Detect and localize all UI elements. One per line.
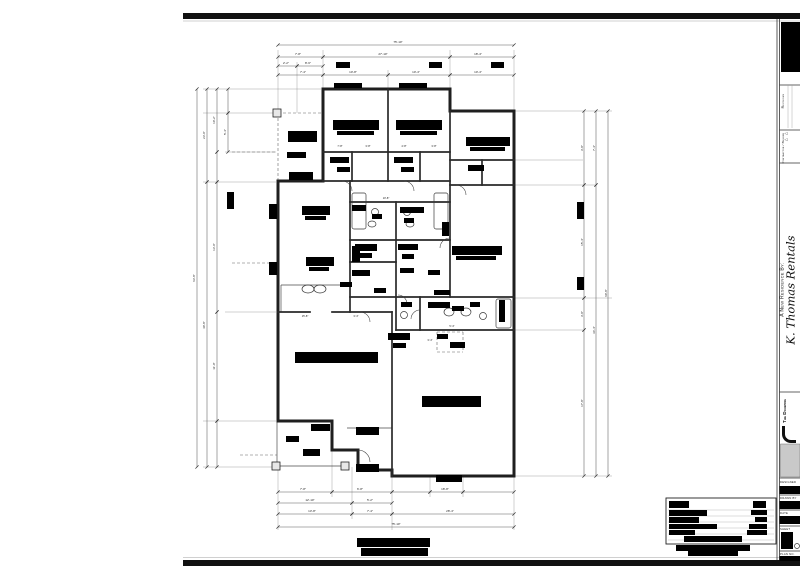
field-label-designed: DESIGNED <box>780 480 796 484</box>
svg-text:10'-8": 10'-8" <box>349 70 357 74</box>
svg-text:3'-4": 3'-4" <box>353 314 358 318</box>
svg-text:40'-8": 40'-8" <box>202 321 206 329</box>
svg-text:7'-8": 7'-8" <box>300 487 306 491</box>
svg-text:17'-8": 17'-8" <box>580 399 584 407</box>
svg-text:10'-2": 10'-2" <box>212 116 216 124</box>
svg-text:8'-6": 8'-6" <box>305 61 311 65</box>
svg-text:5'-4": 5'-4" <box>449 324 454 328</box>
svg-text:7'-4": 7'-4" <box>367 509 373 513</box>
contractor-builder-label: Contractor / Builder <box>779 125 787 171</box>
logo-line: The <box>783 416 788 423</box>
svg-text:6'-8": 6'-8" <box>357 487 363 491</box>
svg-text:2'-2": 2'-2" <box>283 61 289 65</box>
field-label-plan-no: PLAN NO. <box>780 552 795 556</box>
logo-line: Drawing <box>783 399 788 415</box>
svg-text:10'-4": 10'-4" <box>474 70 482 74</box>
svg-text:63'-8": 63'-8" <box>192 274 196 282</box>
svg-text:7'-4": 7'-4" <box>592 145 596 151</box>
svg-text:3'-8": 3'-8" <box>580 311 584 317</box>
svg-text:11'-0": 11'-0" <box>212 362 216 369</box>
svg-text:60'-8": 60'-8" <box>604 289 608 297</box>
svg-text:3'-8": 3'-8" <box>431 144 436 148</box>
svg-text:34'-4": 34'-4" <box>592 326 596 334</box>
drawing-board-logo-text: The Drawing <box>779 394 791 428</box>
svg-text:3'-4": 3'-4" <box>427 338 432 342</box>
svg-text:27'-10": 27'-10" <box>378 52 387 56</box>
field-label-drawn-by: DRAWN BY <box>780 496 797 500</box>
drawing-sheet: 75'-10"7'-8"27'-10"18'-4"2'-2"8'-6"7'-4"… <box>0 0 800 580</box>
svg-text:10'-8": 10'-8" <box>383 196 390 200</box>
svg-text:28'-4": 28'-4" <box>446 509 454 513</box>
svg-text:18'-4": 18'-4" <box>474 52 482 56</box>
svg-text:13'-0": 13'-0" <box>212 243 216 251</box>
svg-text:10'-4": 10'-4" <box>412 70 420 74</box>
svg-text:7'-4": 7'-4" <box>300 70 306 74</box>
svg-text:13'-8": 13'-8" <box>308 509 316 513</box>
client-name: K. Thomas Rentals <box>784 198 798 383</box>
svg-text:75'-10": 75'-10" <box>393 40 402 44</box>
svg-text:18'-8": 18'-8" <box>441 487 449 491</box>
svg-text:7'-8": 7'-8" <box>295 52 301 56</box>
svg-text:7'-8": 7'-8" <box>337 144 342 148</box>
field-label-sheet: SHEET <box>780 527 790 531</box>
drawing-board-logo-icon <box>782 426 796 443</box>
svg-text:4'-8": 4'-8" <box>401 144 406 148</box>
svg-text:75'-10": 75'-10" <box>391 522 400 526</box>
svg-text:3'-8": 3'-8" <box>365 144 370 148</box>
svg-text:5'-2": 5'-2" <box>367 498 373 502</box>
svg-text:12'-10": 12'-10" <box>305 498 314 502</box>
svg-text:3'-8": 3'-8" <box>580 145 584 151</box>
svg-text:15'-4": 15'-4" <box>580 238 584 246</box>
svg-text:23'-0": 23'-0" <box>202 131 206 139</box>
svg-text:5'-4": 5'-4" <box>223 129 227 135</box>
svg-text:15'-8": 15'-8" <box>302 314 309 318</box>
field-label-date: DATE <box>780 511 788 515</box>
revisions-label: Revisions <box>779 86 787 116</box>
floor-plan-svg: 75'-10"7'-8"27'-10"18'-4"2'-2"8'-6"7'-4"… <box>0 0 800 580</box>
